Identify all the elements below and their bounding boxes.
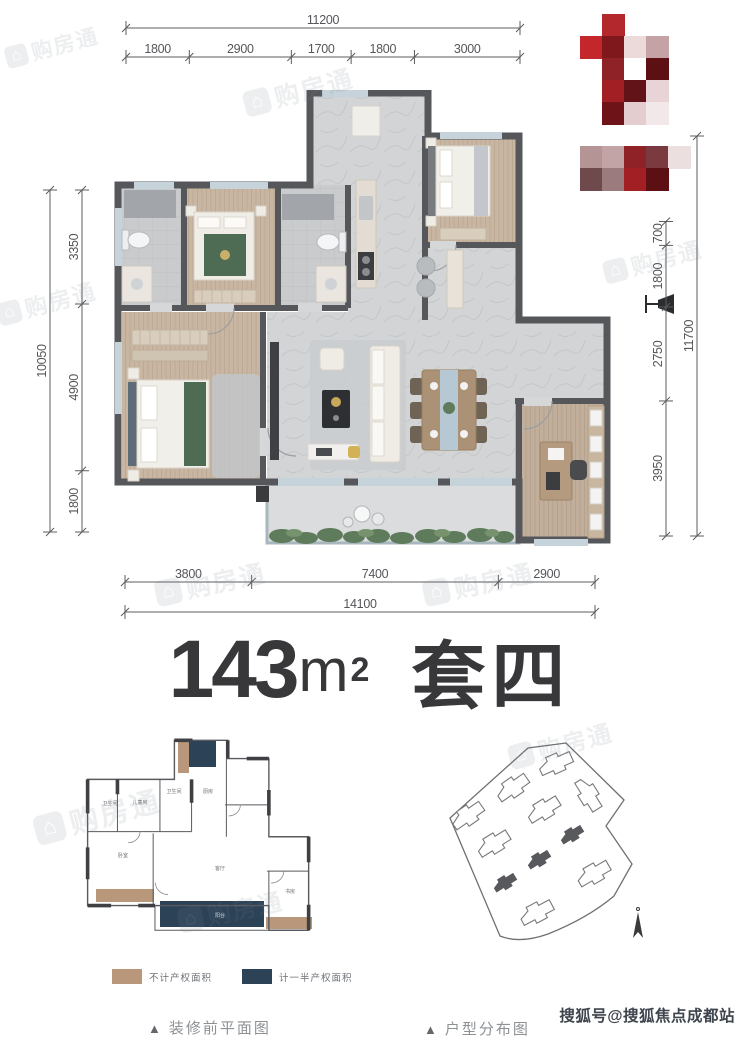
toilet-2 [317,234,339,250]
svg-text:4900: 4900 [67,374,81,401]
house-logo-icon: ⌂ [31,810,68,847]
floorplan-main [110,90,650,560]
area-number: 143 [169,623,297,717]
site-distribution-plan [428,738,660,950]
bistro-table [354,506,370,522]
mosaic-cell [624,58,647,81]
room-label: 书房 [285,888,295,895]
legend-label: 计一半产权面积 [279,970,353,984]
floorplan-page: { "title": {"area": "143", "unit": "m", … [0,0,740,1031]
north-arrow [633,908,643,939]
svg-text:3350: 3350 [67,233,81,260]
svg-text:7400: 7400 [362,567,389,581]
svg-text:2750: 2750 [651,340,665,367]
stool [348,446,360,458]
coffee-table [322,390,350,428]
legend: 不计产权面积 计一半产权面积 [112,969,353,984]
triangle-marker-icon: ▲ [424,1022,439,1037]
master-headboard [128,382,137,466]
room-label: 卧室 [118,852,128,859]
building-outlines [448,748,613,929]
svg-text:1800: 1800 [144,42,171,56]
tan-area-right [266,917,312,929]
site-logo-watermark: ⌂购房通 [2,19,102,73]
legend-label: 不计产权面积 [149,970,212,984]
master-rug [212,374,260,478]
house-logo-icon: ⌂ [3,42,30,69]
hallway-floor [422,247,519,320]
bed2-throw [474,146,488,216]
bed2-dresser [440,228,486,240]
mosaic-cell [602,36,625,59]
kitchen-sink [359,196,373,220]
svg-text:1800: 1800 [67,488,81,515]
floorplan-line-drawing: 卫生间儿童房卫生间厨房卧室客厅书房阳台 [70,733,334,945]
kids-wardrobe [194,290,256,303]
mosaic-cell [602,14,625,37]
bistro-chair-2 [343,517,353,527]
tv-console [270,342,279,460]
entry-cabinet [352,106,380,136]
mosaic-cell [580,36,603,59]
svg-text:14100: 14100 [343,597,377,611]
desk-chair [570,460,587,480]
hallway-2-floor [519,320,607,401]
toilet-1 [128,232,150,248]
pouf-1 [417,257,435,275]
svg-text:3800: 3800 [175,567,202,581]
caption-unit-distribution: ▲户型分布图 [424,1018,530,1039]
mosaic-cell [646,58,669,81]
room-label: 卫生间 [166,788,181,795]
svg-text:700: 700 [651,223,665,243]
ac-unit [256,486,269,502]
dim-chain-bottom: 14100380074002900 [116,558,610,622]
svg-text:2900: 2900 [533,567,560,581]
legend-swatch-navy [242,969,272,984]
mosaic-cell [646,36,669,59]
room-label: 卫生间 [102,800,117,807]
blue-area-top [189,740,216,767]
laptop [546,472,560,490]
hall-cabinet [447,250,463,308]
legend-item-half-property-area: 计一半产权面积 [242,969,353,984]
dim-chain-top: 1120018002900170018003000 [118,2,528,70]
sohu-watermark: 搜狐号@搜狐焦点成都站 [559,1004,735,1026]
legend-swatch-tan [112,969,142,984]
svg-text:11700: 11700 [682,319,696,352]
area-unit: m [298,636,348,705]
shower-mat-1 [124,190,176,218]
room-label: 阳台 [215,912,225,919]
bed2-headboard [428,146,436,216]
armchair [320,348,344,370]
svg-text:3950: 3950 [651,455,665,482]
svg-text:1700: 1700 [308,42,335,56]
svg-text:2900: 2900 [227,42,254,56]
room-label: 儿童房 [132,799,147,806]
shower-mat-2 [282,194,334,220]
master-bed-throw [184,382,206,466]
svg-text:1800: 1800 [651,263,665,290]
dim-chain-right: 11700700180027503950 [644,128,706,546]
legend-item-no-property-area: 不计产权面积 [112,969,212,984]
room-label: 厨房 [203,788,213,795]
master-dresser [132,350,208,361]
area-exponent: 2 [350,651,369,690]
svg-text:1800: 1800 [369,42,396,56]
svg-text:11200: 11200 [307,13,340,27]
tan-area-top [178,740,189,773]
mosaic-cell [624,36,647,59]
svg-text:10050: 10050 [36,344,49,378]
house-logo-icon: ⌂ [0,298,24,327]
mosaic-cell [602,58,625,81]
suite-type: 套四 [411,617,571,724]
unit-title: 143m2 套四 [0,618,740,722]
triangle-marker-icon: ▲ [148,1021,163,1036]
balcony [267,482,519,544]
room-label: 客厅 [215,865,225,872]
pouf-2 [417,279,435,297]
caption-before-renovation-plan: ▲装修前平面图 [148,1017,271,1038]
svg-text:3000: 3000 [454,42,481,56]
tan-area-left [96,889,154,902]
dim-chain-left: 10050335049001800 [36,176,94,548]
bistro-chair [372,513,384,525]
